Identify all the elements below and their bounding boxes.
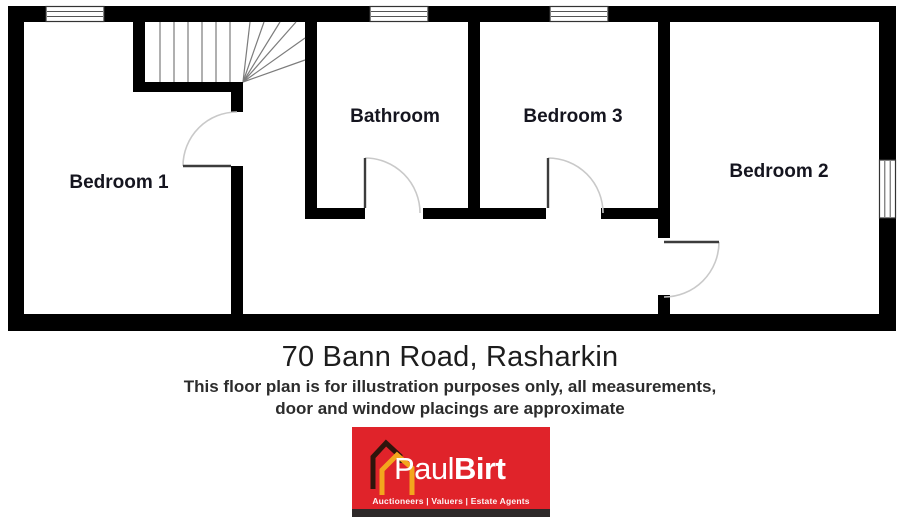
wall-left [8, 6, 24, 331]
wall-top [8, 6, 896, 22]
window-bathroom [370, 7, 428, 22]
wall-stair-left [133, 22, 145, 92]
floorplan-page: Bedroom 1 Bathroom Bedroom 3 Bedroom 2 7… [0, 0, 900, 517]
door-arc [365, 158, 420, 213]
window-bedroom1 [46, 7, 104, 22]
wall-bathroom-bottom-a [305, 208, 365, 219]
door-bedroom2 [664, 242, 719, 297]
brand-name: PaulBirt [394, 453, 505, 484]
room-label-bedroom-2: Bedroom 2 [729, 161, 828, 182]
window-bedroom2-right [880, 160, 896, 218]
room-label-bathroom: Bathroom [350, 106, 440, 127]
door-bedroom3 [548, 158, 603, 213]
wall-bedroom2-left-stub [658, 295, 670, 314]
room-label-bedroom-1: Bedroom 1 [69, 172, 169, 193]
brand-tagline: Auctioneers | Valuers | Estate Agents [352, 496, 550, 506]
door-bathroom [365, 158, 420, 213]
estate-agent-logo: PaulBirt Auctioneers | Valuers | Estate … [352, 427, 550, 517]
window-bedroom3 [550, 7, 608, 22]
brand-name-last: Birt [454, 451, 505, 486]
brand-name-first: Paul [394, 451, 454, 486]
door-arc [548, 158, 603, 213]
floor-plan-drawing: Bedroom 1 Bathroom Bedroom 3 Bedroom 2 [0, 0, 900, 340]
wall-stair-bottom [133, 82, 243, 92]
wall-bedroom1-upper [231, 82, 243, 112]
wall-bathroom-left [305, 22, 317, 219]
doors [183, 112, 719, 297]
staircase [160, 22, 305, 82]
wall-bedroom1-lower [231, 166, 243, 314]
disclaimer-line-1: This floor plan is for illustration purp… [0, 377, 900, 397]
wall-bedroom2-left-upper [658, 22, 670, 238]
door-arc [183, 112, 237, 166]
wall-bottom [8, 314, 896, 331]
address-title: 70 Bann Road, Rasharkin [0, 341, 900, 374]
wall-bath-bed3-divider [468, 22, 480, 219]
logo-bottom-bar [352, 509, 550, 517]
door-bedroom1 [183, 112, 237, 166]
disclaimer-line-2: door and window placings are approximate [0, 399, 900, 419]
wall-bedroom3-bottom-a [480, 208, 546, 219]
interior-walls [133, 22, 670, 314]
door-arc [664, 242, 719, 297]
room-label-bedroom-3: Bedroom 3 [523, 106, 622, 127]
